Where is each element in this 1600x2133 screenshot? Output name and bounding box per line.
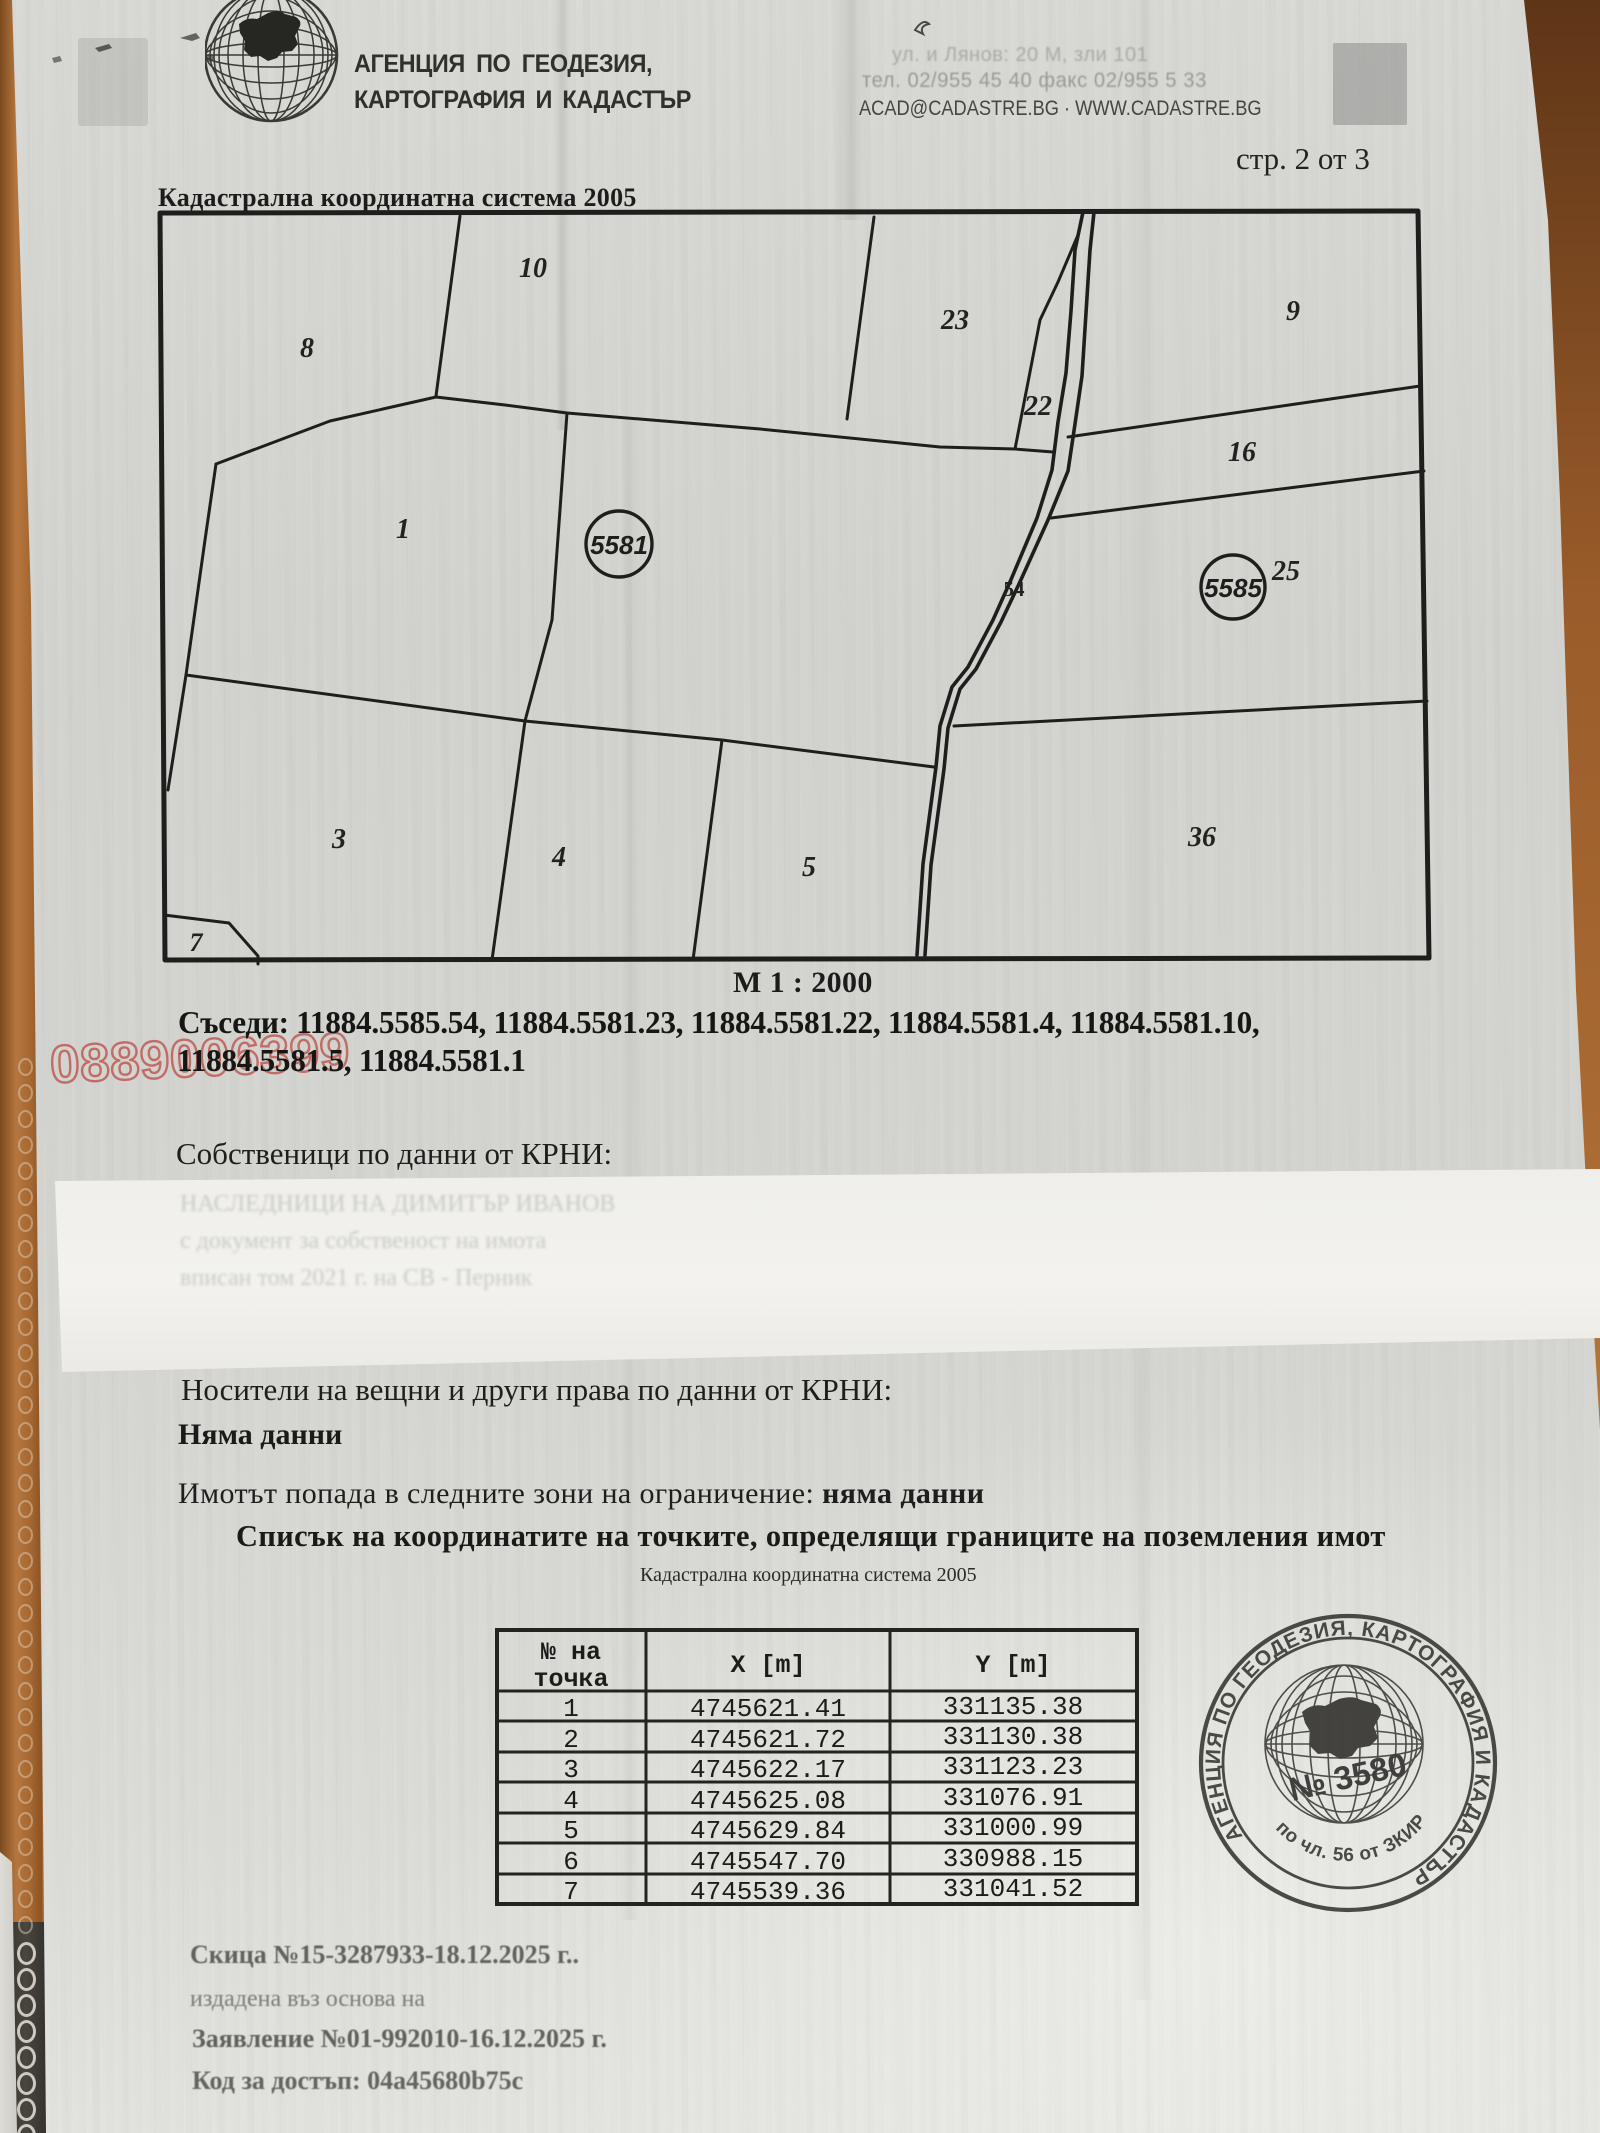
svg-text:1: 1 xyxy=(396,514,410,545)
svg-text:22: 22 xyxy=(1023,391,1052,422)
svg-text:331130.38: 331130.38 xyxy=(943,1722,1083,1752)
svg-text:4745539.36: 4745539.36 xyxy=(690,1877,846,1907)
svg-text:16: 16 xyxy=(1228,437,1256,468)
svg-text:5581: 5581 xyxy=(590,530,648,560)
svg-text:23: 23 xyxy=(940,305,969,336)
svg-text:6: 6 xyxy=(563,1847,579,1877)
svg-text:9: 9 xyxy=(1286,296,1300,327)
svg-text:331135.38: 331135.38 xyxy=(943,1692,1083,1722)
svg-text:5: 5 xyxy=(563,1816,579,1846)
svg-text:331123.23: 331123.23 xyxy=(943,1752,1083,1782)
svg-text:по чл. 56 от ЗКИР: по чл. 56 от ЗКИР xyxy=(1272,1811,1432,1867)
svg-text:36: 36 xyxy=(1187,822,1216,853)
svg-text:2: 2 xyxy=(563,1725,579,1755)
svg-text:5585: 5585 xyxy=(1204,573,1262,603)
svg-text:7: 7 xyxy=(563,1877,579,1907)
svg-text:8: 8 xyxy=(300,333,314,364)
svg-text:4745625.08: 4745625.08 xyxy=(690,1786,846,1816)
svg-text:331000.99: 331000.99 xyxy=(943,1813,1083,1843)
svg-text:№ на: № на xyxy=(541,1638,601,1667)
svg-text:3: 3 xyxy=(563,1755,579,1785)
svg-text:4745629.84: 4745629.84 xyxy=(690,1816,846,1846)
svg-text:54: 54 xyxy=(1004,577,1026,601)
svg-text:25: 25 xyxy=(1271,556,1300,587)
svg-text:4745622.17: 4745622.17 xyxy=(690,1755,846,1785)
svg-text:7: 7 xyxy=(190,928,204,957)
svg-text:5: 5 xyxy=(802,852,816,883)
svg-text:331076.91: 331076.91 xyxy=(943,1783,1083,1813)
svg-text:4: 4 xyxy=(551,842,566,873)
svg-text:4745621.41: 4745621.41 xyxy=(690,1694,846,1724)
svg-text:10: 10 xyxy=(519,253,547,284)
svg-text:4745621.72: 4745621.72 xyxy=(690,1725,846,1755)
svg-text:1: 1 xyxy=(563,1694,579,1724)
svg-text:4: 4 xyxy=(563,1786,579,1816)
svg-text:Y [m]: Y [m] xyxy=(975,1651,1050,1680)
svg-text:330988.15: 330988.15 xyxy=(943,1844,1083,1874)
svg-text:4745547.70: 4745547.70 xyxy=(690,1847,846,1877)
svg-text:точка: точка xyxy=(533,1665,608,1694)
svg-text:331041.52: 331041.52 xyxy=(943,1874,1083,1904)
svg-text:X [m]: X [m] xyxy=(730,1651,805,1680)
svg-text:3: 3 xyxy=(331,824,346,855)
